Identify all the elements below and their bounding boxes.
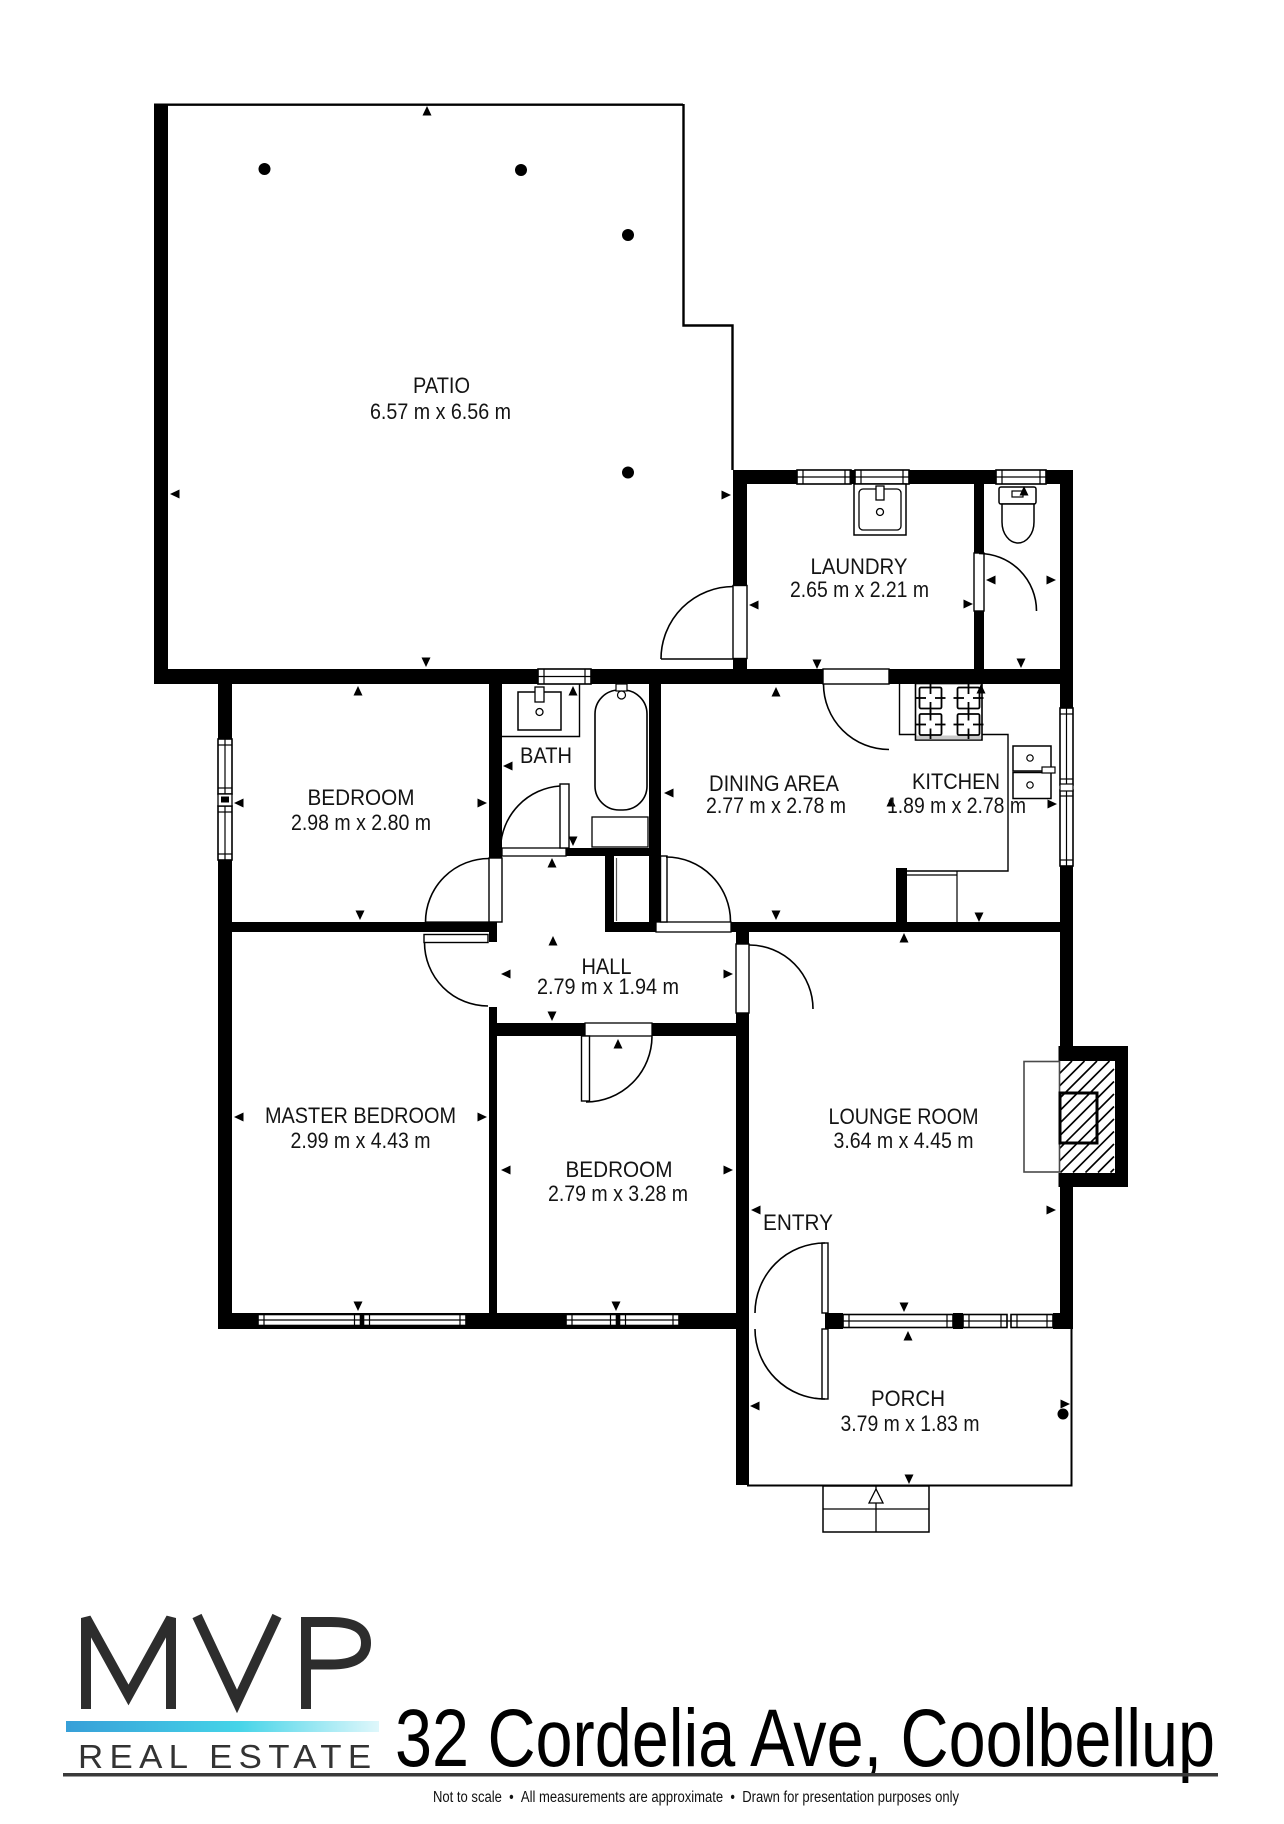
svg-text:PATIO: PATIO	[413, 373, 470, 398]
svg-text:LAUNDRY: LAUNDRY	[811, 554, 908, 579]
svg-text:ENTRY: ENTRY	[763, 1210, 833, 1235]
svg-text:2.77 m x 2.78 m: 2.77 m x 2.78 m	[706, 793, 846, 818]
svg-text:KITCHEN: KITCHEN	[912, 769, 1000, 794]
svg-text:BATH: BATH	[520, 743, 572, 768]
svg-text:PORCH: PORCH	[871, 1386, 945, 1411]
svg-text:2.65 m x 2.21 m: 2.65 m x 2.21 m	[790, 577, 929, 602]
svg-text:2.79 m x 3.28 m: 2.79 m x 3.28 m	[548, 1181, 688, 1206]
svg-text:2.98 m x 2.80 m: 2.98 m x 2.80 m	[291, 810, 431, 835]
svg-text:3.79 m x 1.83 m: 3.79 m x 1.83 m	[841, 1411, 980, 1436]
svg-text:6.57 m x 6.56 m: 6.57 m x 6.56 m	[370, 399, 511, 424]
svg-text:2.79 m x 1.94 m: 2.79 m x 1.94 m	[537, 974, 679, 999]
svg-text:BEDROOM: BEDROOM	[566, 1157, 673, 1182]
svg-text:1.89 m x 2.78 m: 1.89 m x 2.78 m	[887, 793, 1026, 818]
svg-text:32 Cordelia Ave, Coolbellup: 32 Cordelia Ave, Coolbellup	[395, 1693, 1215, 1784]
svg-text:3.64 m x 4.45 m: 3.64 m x 4.45 m	[834, 1128, 974, 1153]
svg-text:Not to scale • All measureme: Not to scale • All measurements are appr…	[433, 1789, 959, 1806]
svg-text:REAL ESTATE: REAL ESTATE	[78, 1738, 378, 1775]
svg-text:2.99 m x 4.43 m: 2.99 m x 4.43 m	[291, 1128, 431, 1153]
svg-text:LOUNGE ROOM: LOUNGE ROOM	[829, 1104, 979, 1129]
svg-text:MASTER BEDROOM: MASTER BEDROOM	[265, 1103, 456, 1128]
svg-text:BEDROOM: BEDROOM	[308, 785, 415, 810]
